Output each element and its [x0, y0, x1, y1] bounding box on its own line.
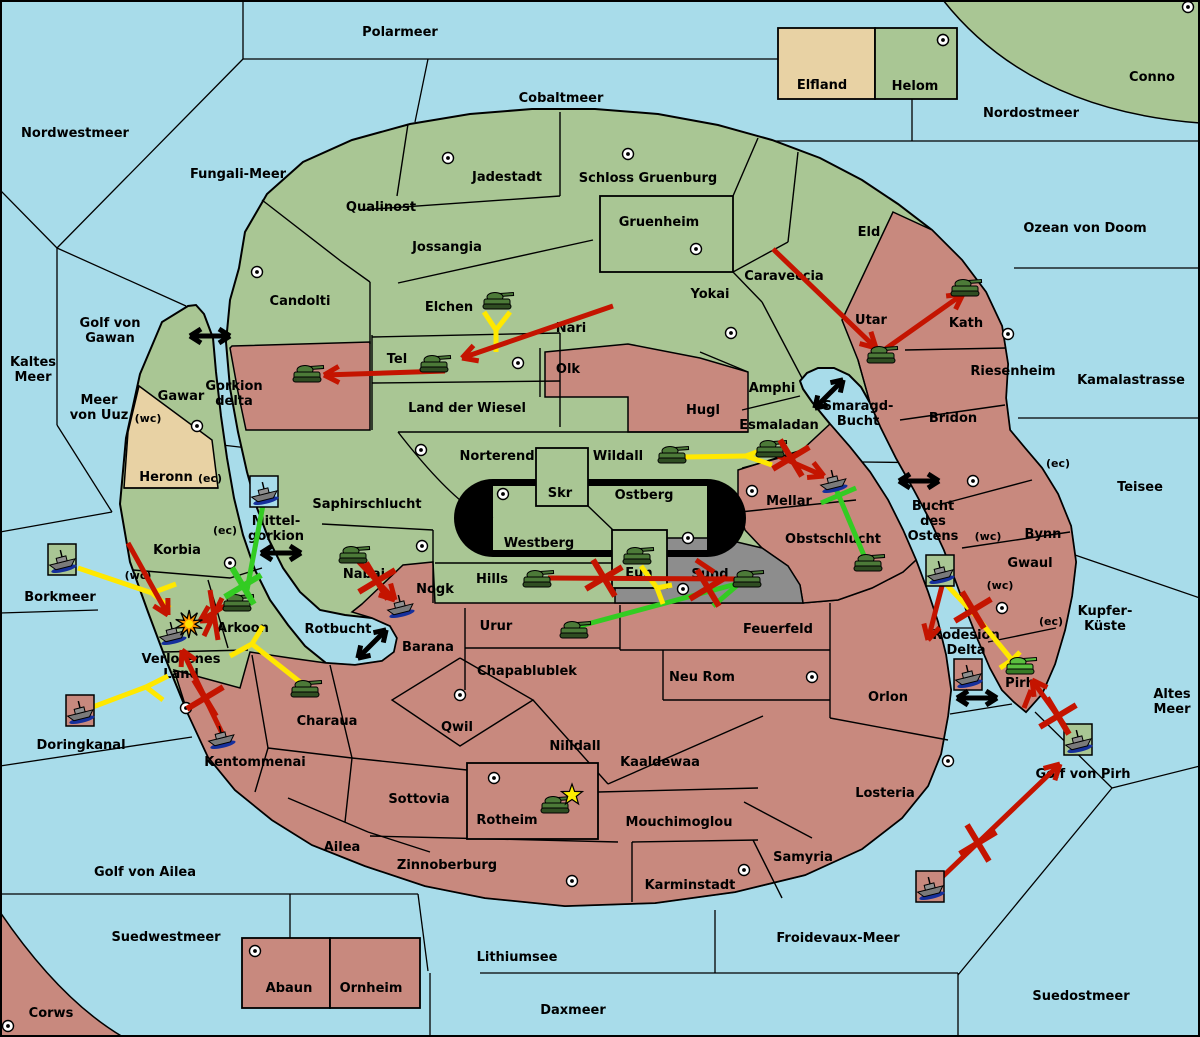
label-orlon: Orlon	[868, 690, 908, 705]
label-ozean-von-doom: Ozean von Doom	[1023, 221, 1146, 236]
label-chapablublek: Chapablublek	[477, 664, 577, 679]
coast-marker-ec: (ec)	[1039, 615, 1063, 628]
tank-unit-hills[interactable]	[523, 571, 554, 588]
label-obstschlucht: Obstschlucht	[785, 532, 881, 547]
label-nordwestmeer: Nordwestmeer	[21, 126, 129, 141]
ornheim-box	[330, 938, 420, 1008]
label-skr: Skr	[548, 486, 573, 501]
supply-center-icon	[192, 421, 203, 432]
tank-unit-utar[interactable]	[867, 347, 898, 364]
label-suedwestmeer: Suedwestmeer	[111, 930, 221, 945]
supply-center-icon	[807, 672, 818, 683]
label-amphi: Amphi	[749, 381, 796, 396]
label-feuerfeld: Feuerfeld	[743, 622, 813, 637]
legend-supply-center-icon	[938, 35, 949, 46]
supply-center-icon	[513, 358, 524, 369]
attack-arrow	[548, 578, 740, 579]
tank-unit-urur[interactable]	[560, 622, 591, 639]
label-neu-rom: Neu Rom	[669, 670, 735, 685]
supply-center-icon	[250, 946, 261, 957]
label-abaun: Abaun	[266, 981, 313, 996]
label-teisee: Teisee	[1117, 480, 1163, 495]
coast-marker-wc: (wc)	[987, 579, 1014, 592]
label-nordostmeer: Nordostmeer	[983, 106, 1080, 121]
label-doringkanal: Doringkanal	[36, 738, 125, 753]
tank-unit-nabai[interactable]	[339, 547, 370, 564]
label-helom: Helom	[892, 79, 939, 94]
label-gawar: Gawar	[158, 389, 205, 404]
supply-center-icon	[691, 244, 702, 255]
supply-center-icon	[997, 603, 1008, 614]
tank-unit-charaua[interactable]	[291, 681, 322, 698]
label-fungali-meer: Fungali-Meer	[190, 167, 287, 182]
label-samyria: Samyria	[773, 850, 833, 865]
label-conno: Conno	[1129, 70, 1175, 85]
label-rotbucht: Rotbucht	[305, 622, 372, 637]
label-heronn: Heronn	[139, 470, 193, 485]
coast-marker-wc: (wc)	[135, 412, 162, 425]
label-hugl: Hugl	[686, 403, 720, 418]
label-gwaul: Gwaul	[1007, 556, 1052, 571]
label-korbia: Korbia	[153, 543, 201, 558]
coast-marker-ec: (ec)	[213, 524, 237, 537]
supply-center-icon	[1003, 329, 1014, 340]
label-saphirschlucht: Saphirschlucht	[312, 497, 421, 512]
supply-center-icon	[678, 584, 689, 595]
game-map-stage: PolarmeerCobaltmeerNordostmeerNordwestme…	[0, 0, 1200, 1037]
supply-center-icon	[1183, 2, 1194, 13]
label-jossangia: Jossangia	[411, 240, 482, 255]
label-utar: Utar	[855, 313, 888, 328]
label-caraveccia: Caraveccia	[744, 269, 823, 284]
label-kupfer-k-ste: Kupfer-Küste	[1078, 604, 1133, 634]
strategy-map: PolarmeerCobaltmeerNordostmeerNordwestme…	[0, 0, 1200, 1037]
label-charaua: Charaua	[297, 714, 358, 729]
label-hills: Hills	[476, 572, 508, 587]
label-westberg: Westberg	[504, 536, 574, 551]
coast-marker-wc: (wc)	[975, 530, 1002, 543]
label-nilldall: Nilldall	[549, 739, 600, 754]
tank-unit-wildall[interactable]	[658, 447, 689, 464]
label-jadestadt: Jadestadt	[471, 170, 542, 185]
label-golf-von-gawan: Golf vonGawan	[80, 316, 141, 346]
label-lithiumsee: Lithiumsee	[477, 950, 558, 965]
label-wildall: Wildall	[593, 449, 643, 464]
label-daxmeer: Daxmeer	[540, 1003, 606, 1018]
tank-unit-obstschlucht[interactable]	[854, 555, 885, 572]
label-kamalastrasse: Kamalastrasse	[1077, 373, 1185, 388]
label-yokai: Yokai	[689, 287, 729, 302]
label-nogk: Nogk	[416, 582, 454, 597]
label-suedostmeer: Suedostmeer	[1032, 989, 1130, 1004]
label-froidevaux-meer: Froidevaux-Meer	[776, 931, 900, 946]
label-sottovia: Sottovia	[388, 792, 449, 807]
label-olk: Olk	[556, 362, 581, 377]
tank-unit-gurand[interactable]	[293, 366, 324, 383]
supply-center-icon	[567, 876, 578, 887]
label-zinnoberburg: Zinnoberburg	[397, 858, 497, 873]
label-kath: Kath	[949, 316, 983, 331]
label-borkmeer: Borkmeer	[24, 590, 96, 605]
supply-center-icon	[489, 773, 500, 784]
label-barana: Barana	[402, 640, 454, 655]
label-elchen: Elchen	[425, 300, 473, 315]
label-rotheim: Rotheim	[476, 813, 537, 828]
tank-unit-tel[interactable]	[420, 356, 451, 373]
supply-center-icon	[443, 153, 454, 164]
supply-center-icon	[747, 486, 758, 497]
supply-center-icon	[726, 328, 737, 339]
supply-center-icon	[417, 541, 428, 552]
label-bynn: Bynn	[1025, 527, 1062, 542]
label-schloss-gruenburg: Schloss Gruenburg	[579, 171, 717, 186]
supply-center-icon	[683, 533, 694, 544]
tank-unit-sund[interactable]	[733, 571, 764, 588]
label-kaltes-meer: KaltesMeer	[10, 355, 56, 385]
label-candolti: Candolti	[270, 294, 331, 309]
label-norterend: Norterend	[459, 449, 534, 464]
supply-center-icon	[498, 489, 509, 500]
tank-unit-elchen[interactable]	[483, 293, 514, 310]
label-riesenheim: Riesenheim	[970, 364, 1055, 379]
label-qualinost: Qualinost	[346, 200, 416, 215]
label-golf-von-ailea: Golf von Ailea	[94, 865, 196, 880]
label-polarmeer: Polarmeer	[362, 25, 438, 40]
label-elfland: Elfland	[797, 78, 847, 93]
label-losteria: Losteria	[855, 786, 915, 801]
label-kaaldewaa: Kaaldewaa	[620, 755, 700, 770]
supply-center-icon	[623, 149, 634, 160]
tank-unit-kath[interactable]	[951, 280, 982, 297]
label-mouchimoglou: Mouchimoglou	[626, 815, 733, 830]
supply-center-icon	[943, 756, 954, 767]
supply-center-icon	[455, 690, 466, 701]
supply-center-icon	[416, 445, 427, 456]
label-tel: Tel	[387, 352, 407, 367]
label-qwil: Qwil	[441, 720, 473, 735]
label-land-der-wiesel: Land der Wiesel	[408, 401, 526, 416]
label-ailea: Ailea	[324, 840, 361, 855]
tank-unit-eun[interactable]	[623, 548, 654, 565]
label-karminstadt: Karminstadt	[645, 878, 736, 893]
supply-center-icon	[252, 267, 263, 278]
label-ornheim: Ornheim	[340, 981, 403, 996]
label-altes-meer: AltesMeer	[1153, 687, 1191, 717]
label-urur: Urur	[480, 619, 513, 634]
coast-marker-ec: (ec)	[198, 472, 222, 485]
supply-center-icon	[968, 476, 979, 487]
coast-marker-ec: (ec)	[1046, 457, 1070, 470]
supply-center-icon	[739, 865, 750, 876]
label-corws: Corws	[29, 1006, 74, 1021]
label-mellar: Mellar	[766, 494, 812, 509]
label-cobaltmeer: Cobaltmeer	[519, 91, 604, 106]
label-eld: Eld	[858, 225, 881, 240]
label-bridon: Bridon	[929, 411, 977, 426]
label-kentommenai: Kentommenai	[204, 755, 305, 770]
label-esmaladan: Esmaladan	[739, 418, 819, 433]
label-ostberg: Ostberg	[615, 488, 674, 503]
supply-center-icon	[3, 1021, 14, 1032]
tank-unit-pirh[interactable]	[1006, 658, 1037, 675]
label-gruenheim: Gruenheim	[619, 215, 699, 230]
